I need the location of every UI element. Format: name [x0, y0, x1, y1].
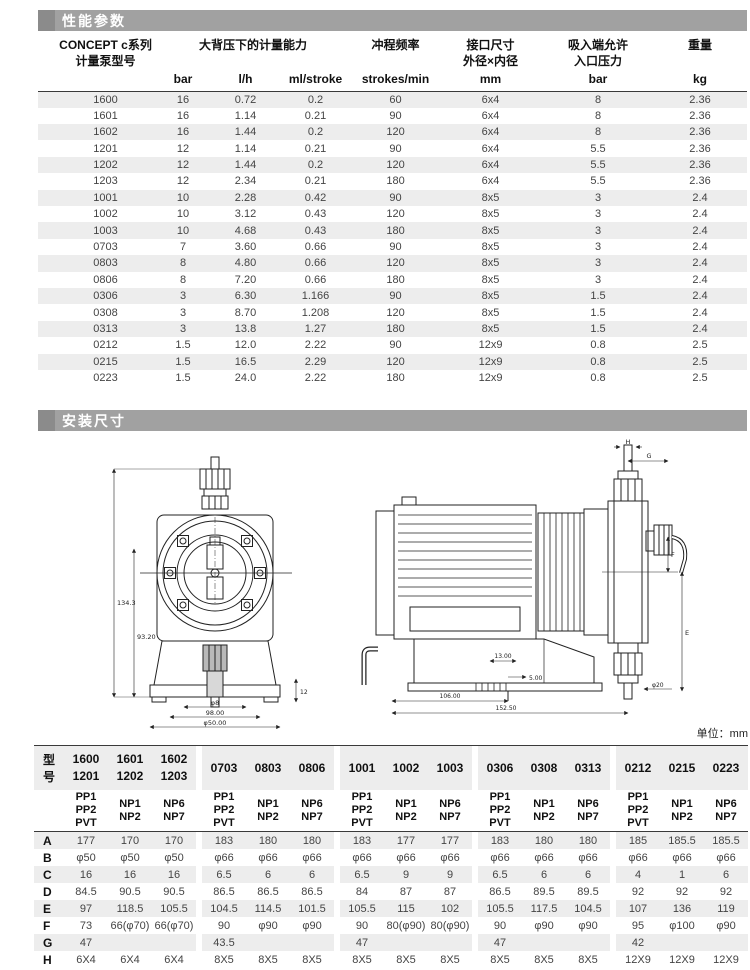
section-accent-square	[38, 10, 55, 31]
performance-cell: 8	[153, 272, 213, 288]
datasheet-page: 性能参数 CONCEPT c系列 计量泵型号 大背压下的计量能力 冲程频率 接口…	[0, 0, 750, 970]
dim-cell: 119	[704, 900, 748, 917]
dim-group: 43.5	[202, 934, 334, 951]
performance-cell: 1.5	[543, 321, 653, 337]
dim-cell: 86.5	[246, 883, 290, 900]
performance-cell: 8x5	[438, 206, 543, 222]
dim-cell: 6	[290, 866, 334, 883]
dim-row-label: E	[34, 900, 64, 917]
dim-cell: NP6NP7	[152, 790, 196, 831]
performance-row: 02151.516.52.2912012x90.82.5	[38, 354, 747, 370]
performance-row: 080687.200.661808x532.4	[38, 272, 747, 288]
performance-cell: 10	[153, 206, 213, 222]
dim-group: A177170170	[34, 832, 196, 849]
col-header-capacity: 大背压下的计量能力	[153, 37, 353, 70]
dim-group: H6X46X46X4	[34, 951, 196, 968]
performance-cell: 0.21	[278, 140, 353, 156]
performance-cell: 12	[153, 157, 213, 173]
dim-cell: 6	[246, 866, 290, 883]
dim-cell: NP6NP7	[290, 790, 334, 831]
performance-cell: 0703	[38, 239, 153, 255]
performance-cell: 2.34	[213, 173, 278, 189]
dim-cell: φ50	[64, 849, 108, 866]
dim-cell: 101.5	[290, 900, 334, 917]
performance-cell: 0.72	[213, 91, 278, 107]
performance-cell: 2.5	[653, 337, 747, 353]
performance-cell: 1002	[38, 206, 153, 222]
dim-cell: 183	[202, 832, 246, 849]
performance-row: 02121.512.02.229012x90.82.5	[38, 337, 747, 353]
performance-cell: 8x5	[438, 321, 543, 337]
dim-group: 070308030806	[202, 746, 334, 790]
dim-cell: φ66	[704, 849, 748, 866]
dim-cell: φ66	[522, 849, 566, 866]
dim-cell: 90	[478, 917, 522, 934]
dim-cell: 0313	[566, 746, 610, 790]
dim-cell	[152, 934, 196, 951]
col-header-model: CONCEPT c系列 计量泵型号	[38, 37, 153, 70]
dim-cell	[522, 934, 566, 951]
performance-cell: 3	[153, 304, 213, 320]
dim-cell: 92	[704, 883, 748, 900]
dim-row-label: C	[34, 866, 64, 883]
dim-cell: NP6NP7	[566, 790, 610, 831]
dim-group: φ66φ66φ66	[202, 849, 334, 866]
dim-row-label: F	[34, 917, 64, 934]
performance-cell: 3	[543, 222, 653, 238]
performance-cell: 180	[353, 272, 438, 288]
col-header-model-line1: CONCEPT c系列	[58, 38, 153, 54]
dim-group: 47	[340, 934, 472, 951]
dim-cell: 183	[478, 832, 522, 849]
dim-group: G47	[34, 934, 196, 951]
dim-cell: 8X5	[246, 951, 290, 968]
dim-cell: NP6NP7	[704, 790, 748, 831]
dimension-label: E	[685, 629, 689, 637]
dim-cell: PP1PP2PVT	[616, 790, 660, 831]
performance-cell: 6x4	[438, 140, 543, 156]
performance-cell: 0.66	[278, 239, 353, 255]
dim-cell: 84.5	[64, 883, 108, 900]
col-header-stroke-frequency: 冲程频率	[353, 37, 438, 70]
dim-cell: 97	[64, 900, 108, 917]
performance-cell: 3	[153, 321, 213, 337]
dim-group: 183180180	[202, 832, 334, 849]
dim-cell: 177	[428, 832, 472, 849]
dim-group: 183177177	[340, 832, 472, 849]
dim-cell: 86.5	[478, 883, 522, 900]
performance-row: 030636.301.166908x51.52.4	[38, 288, 747, 304]
dim-cell: φ90	[522, 917, 566, 934]
dim-group: 6.599	[340, 866, 472, 883]
dim-cell: 8X5	[478, 951, 522, 968]
performance-cell: 8x5	[438, 272, 543, 288]
performance-cell: 0.2	[278, 91, 353, 107]
dim-cell: φ66	[290, 849, 334, 866]
dim-cell: φ66	[202, 849, 246, 866]
dim-cell: PP1PP2PVT	[340, 790, 384, 831]
performance-cell: 2.22	[278, 337, 353, 353]
dim-cell: 16011202	[108, 746, 152, 790]
dim-cell: 105.5	[152, 900, 196, 917]
dim-table-row: D84.590.590.586.586.586.584878786.589.58…	[34, 883, 748, 900]
dim-group: 416	[616, 866, 748, 883]
dim-group: 42	[616, 934, 748, 951]
performance-cell: 0.43	[278, 222, 353, 238]
performance-cell: 0.66	[278, 255, 353, 271]
dim-group: 021202150223	[616, 746, 748, 790]
performance-cell: 90	[353, 108, 438, 124]
performance-cell: 16	[153, 108, 213, 124]
dim-row-label: H	[34, 951, 64, 968]
col-header-suction-line2: 入口压力	[543, 54, 653, 70]
dim-cell: 86.5	[202, 883, 246, 900]
performance-cell: 180	[353, 321, 438, 337]
dim-group: 848787	[340, 883, 472, 900]
dim-cell: φ66	[384, 849, 428, 866]
unit-mlstroke: ml/stroke	[278, 70, 353, 91]
dimension-label: 13.00	[494, 653, 511, 660]
performance-row: 030838.701.2081208x51.52.4	[38, 304, 747, 320]
performance-cell: 2.36	[653, 124, 747, 140]
dim-cell	[108, 934, 152, 951]
performance-cell: 6x4	[438, 157, 543, 173]
dim-row-label: D	[34, 883, 64, 900]
dim-cell: 80(φ90)	[384, 917, 428, 934]
dim-cell: 92	[616, 883, 660, 900]
dim-group: Bφ50φ50φ50	[34, 849, 196, 866]
dim-cell: 8X5	[428, 951, 472, 968]
performance-cell: 0.8	[543, 370, 653, 386]
performance-cell: 1.5	[543, 304, 653, 320]
dim-table-row: H6X46X46X48X58X58X58X58X58X58X58X58X512X…	[34, 951, 748, 968]
dim-group: C161616	[34, 866, 196, 883]
installation-drawings: 134.3 93.20 φ8 98.00 φ50.00 12	[100, 437, 750, 723]
dim-group: φ66φ66φ66	[616, 849, 748, 866]
dim-cell: NP1NP2	[384, 790, 428, 831]
performance-cell: 6x4	[438, 124, 543, 140]
dim-cell: 47	[64, 934, 108, 951]
performance-row: 1602161.440.21206x482.36	[38, 124, 747, 140]
dim-cell: 6	[522, 866, 566, 883]
dim-cell: 114.5	[246, 900, 290, 917]
performance-cell: 1202	[38, 157, 153, 173]
performance-cell: 180	[353, 370, 438, 386]
dim-group: 107136119	[616, 900, 748, 917]
performance-cell: 2.4	[653, 206, 747, 222]
dim-cell: 42	[616, 934, 660, 951]
dim-cell: 115	[384, 900, 428, 917]
performance-cell: 6x4	[438, 91, 543, 107]
dim-cell: φ90	[290, 917, 334, 934]
unit-bar: bar	[153, 70, 213, 91]
performance-cell: 0306	[38, 288, 153, 304]
dim-cell: 47	[478, 934, 522, 951]
dim-cell: 66(φ70)	[108, 917, 152, 934]
dim-cell: 6X4	[108, 951, 152, 968]
performance-cell: 8.70	[213, 304, 278, 320]
dimension-label: 12	[300, 689, 308, 696]
dim-cell: 4	[616, 866, 660, 883]
performance-cell: 0.42	[278, 190, 353, 206]
dim-group: 95φ100φ90	[616, 917, 748, 934]
dim-cell: 136	[660, 900, 704, 917]
performance-cell: 0313	[38, 321, 153, 337]
dimension-label: 5.00	[529, 675, 543, 682]
dim-cell: 80(φ90)	[428, 917, 472, 934]
performance-cell: 8x5	[438, 239, 543, 255]
performance-cell: 0.2	[278, 124, 353, 140]
dim-cell: 8X5	[566, 951, 610, 968]
section-performance-title: 性能参数	[55, 11, 126, 31]
performance-cell: 3.60	[213, 239, 278, 255]
dim-cell: 16	[108, 866, 152, 883]
performance-cell: 1.5	[153, 337, 213, 353]
dim-cell: 95	[616, 917, 660, 934]
performance-cell: 12	[153, 173, 213, 189]
dim-group: 8X58X58X5	[202, 951, 334, 968]
dimension-label: G	[646, 452, 651, 460]
performance-cell: 0.2	[278, 157, 353, 173]
dim-cell: φ90	[566, 917, 610, 934]
col-header-weight: 重量	[653, 37, 747, 70]
performance-cell: 2.36	[653, 91, 747, 107]
dim-cell: 104.5	[202, 900, 246, 917]
dim-group: 90φ90φ90	[202, 917, 334, 934]
performance-cell: 3	[543, 206, 653, 222]
performance-cell: 3	[153, 288, 213, 304]
performance-row: 0313313.81.271808x51.52.4	[38, 321, 747, 337]
performance-cell: 1.14	[213, 108, 278, 124]
performance-cell: 2.36	[653, 140, 747, 156]
dimensions-table: 型号16001201160112021602120307030803080610…	[34, 745, 748, 968]
dim-cell: 105.5	[340, 900, 384, 917]
dim-cell: 0806	[290, 746, 334, 790]
performance-cell: 2.4	[653, 288, 747, 304]
dim-cell: 86.5	[290, 883, 334, 900]
dim-cell: 8X5	[290, 951, 334, 968]
dim-cell: 104.5	[566, 900, 610, 917]
performance-row: 080384.800.661208x532.4	[38, 255, 747, 271]
dim-group: 8X58X58X5	[340, 951, 472, 968]
performance-cell: 8	[543, 108, 653, 124]
dim-cell: 180	[522, 832, 566, 849]
dim-cell: 102	[428, 900, 472, 917]
performance-cell: 90	[353, 337, 438, 353]
dim-group: PP1PP2PVTNP1NP2NP6NP7	[478, 790, 610, 831]
dim-cell: 6.5	[202, 866, 246, 883]
performance-cell: 90	[353, 140, 438, 156]
performance-cell: 120	[353, 206, 438, 222]
performance-cell: 1.44	[213, 124, 278, 140]
performance-cell: 90	[353, 288, 438, 304]
performance-cell: 16	[153, 91, 213, 107]
performance-cell: 1.44	[213, 157, 278, 173]
performance-cell: 120	[353, 304, 438, 320]
performance-cell: 24.0	[213, 370, 278, 386]
dim-group: 6.566	[478, 866, 610, 883]
performance-cell: 1.208	[278, 304, 353, 320]
dim-cell: 6X4	[64, 951, 108, 968]
performance-row: 070373.600.66908x532.4	[38, 239, 747, 255]
col-header-model-line2: 计量泵型号	[58, 54, 153, 70]
performance-cell: 1.5	[153, 370, 213, 386]
dimension-label: F	[671, 551, 675, 559]
performance-cell: 12	[153, 140, 213, 156]
dim-cell: NP1NP2	[246, 790, 290, 831]
performance-cell: 0.43	[278, 206, 353, 222]
performance-cell: 5.5	[543, 140, 653, 156]
performance-cell: 0.8	[543, 354, 653, 370]
dim-cell: 84	[340, 883, 384, 900]
performance-cell: 8x5	[438, 288, 543, 304]
dim-cell: 90.5	[152, 883, 196, 900]
dim-cell	[246, 934, 290, 951]
dim-cell: 180	[290, 832, 334, 849]
performance-cell: 1001	[38, 190, 153, 206]
performance-cell: 2.4	[653, 321, 747, 337]
performance-cell: 10	[153, 222, 213, 238]
dim-table-row: PP1PP2PVTNP1NP2NP6NP7PP1PP2PVTNP1NP2NP6N…	[34, 790, 748, 832]
performance-cell: 60	[353, 91, 438, 107]
performance-cell: 0215	[38, 354, 153, 370]
dim-row-label: B	[34, 849, 64, 866]
dim-group: PP1PP2PVTNP1NP2NP6NP7	[616, 790, 748, 831]
dim-group: 86.586.586.5	[202, 883, 334, 900]
performance-cell: 1.14	[213, 140, 278, 156]
dim-cell: 185.5	[704, 832, 748, 849]
dim-cell: 117.5	[522, 900, 566, 917]
col-header-connection-line2: 外径×内径	[438, 54, 543, 70]
performance-cell: 1601	[38, 108, 153, 124]
dim-group: E97118.5105.5	[34, 900, 196, 917]
dim-group: F7366(φ70)66(φ70)	[34, 917, 196, 934]
dim-group: 12X912X912X9	[616, 951, 748, 968]
performance-cell: 2.4	[653, 255, 747, 271]
performance-cell: 120	[353, 354, 438, 370]
performance-cell: 2.4	[653, 239, 747, 255]
dim-group: φ66φ66φ66	[478, 849, 610, 866]
col-header-suction-line1: 吸入端允许	[543, 38, 653, 54]
dim-cell: 180	[566, 832, 610, 849]
performance-row: 1201121.140.21906x45.52.36	[38, 140, 747, 156]
dim-cell	[428, 934, 472, 951]
performance-cell: 12x9	[438, 337, 543, 353]
dim-group: 100110021003	[340, 746, 472, 790]
performance-cell: 1.5	[543, 288, 653, 304]
dim-cell	[704, 934, 748, 951]
dim-row-label: A	[34, 832, 64, 849]
dim-group: 104.5114.5101.5	[202, 900, 334, 917]
dim-cell: φ66	[246, 849, 290, 866]
dim-table-row: Bφ50φ50φ50φ66φ66φ66φ66φ66φ66φ66φ66φ66φ66…	[34, 849, 748, 866]
dim-cell: 87	[384, 883, 428, 900]
col-header-suction: 吸入端允许 入口压力	[543, 37, 653, 70]
dim-cell: 6X4	[152, 951, 196, 968]
dim-cell: 6.5	[478, 866, 522, 883]
performance-cell: 4.68	[213, 222, 278, 238]
performance-row: 1003104.680.431808x532.4	[38, 222, 747, 238]
performance-cell: 90	[353, 190, 438, 206]
dim-cell	[290, 934, 334, 951]
dim-cell: 12X9	[660, 951, 704, 968]
performance-cell: 1201	[38, 140, 153, 156]
dim-cell: 9	[428, 866, 472, 883]
performance-cell: 7	[153, 239, 213, 255]
performance-cell: 5.5	[543, 173, 653, 189]
dim-cell: 6	[566, 866, 610, 883]
dimension-label: 134.3	[117, 599, 136, 607]
dim-cell: 6.5	[340, 866, 384, 883]
dim-group: 105.5115102	[340, 900, 472, 917]
performance-cell: 2.4	[653, 222, 747, 238]
dim-group: 9080(φ90)80(φ90)	[340, 917, 472, 934]
dim-group: 90φ90φ90	[478, 917, 610, 934]
performance-row: 1203122.340.211806x45.52.36	[38, 173, 747, 189]
performance-cell: 3	[543, 255, 653, 271]
performance-cell: 6.30	[213, 288, 278, 304]
dim-group: φ66φ66φ66	[340, 849, 472, 866]
dim-group: 105.5117.5104.5	[478, 900, 610, 917]
dim-group: PP1PP2PVTNP1NP2NP6NP7	[202, 790, 334, 831]
performance-cell: 0.21	[278, 108, 353, 124]
dim-cell: 0212	[616, 746, 660, 790]
dim-cell: 16	[64, 866, 108, 883]
performance-cell: 5.5	[543, 157, 653, 173]
performance-row: 1001102.280.42908x532.4	[38, 190, 747, 206]
dim-cell: PP1PP2PVT	[202, 790, 246, 831]
dim-cell: 107	[616, 900, 660, 917]
performance-row: 1002103.120.431208x532.4	[38, 206, 747, 222]
dim-group: PP1PP2PVTNP1NP2NP6NP7	[340, 790, 472, 831]
dim-cell: 183	[340, 832, 384, 849]
dim-cell: 16001201	[64, 746, 108, 790]
dim-group: 929292	[616, 883, 748, 900]
performance-cell: 7.20	[213, 272, 278, 288]
dim-cell: φ66	[660, 849, 704, 866]
dim-cell: 89.5	[566, 883, 610, 900]
dim-cell: φ50	[108, 849, 152, 866]
dim-cell: 8X5	[340, 951, 384, 968]
performance-cell: 3	[543, 272, 653, 288]
unit-strokesmin: strokes/min	[353, 70, 438, 91]
performance-cell: 12x9	[438, 370, 543, 386]
dim-cell: 177	[64, 832, 108, 849]
performance-cell: 120	[353, 157, 438, 173]
performance-row: 02231.524.02.2218012x90.82.5	[38, 370, 747, 386]
section-accent-square	[38, 410, 55, 431]
dim-cell: φ66	[478, 849, 522, 866]
performance-cell: 1203	[38, 173, 153, 189]
performance-cell: 8x5	[438, 190, 543, 206]
dim-group: 183180180	[478, 832, 610, 849]
performance-cell: 0.21	[278, 173, 353, 189]
dimension-label: 106.00	[440, 693, 461, 700]
dim-cell: 90	[340, 917, 384, 934]
dim-group: 86.589.589.5	[478, 883, 610, 900]
pump-front-view-drawing: 134.3 93.20 φ8 98.00 φ50.00 12	[100, 453, 340, 733]
performance-cell: 1602	[38, 124, 153, 140]
section-dimensions-title: 安装尺寸	[55, 411, 126, 431]
performance-cell: 0803	[38, 255, 153, 271]
dim-cell: 0306	[478, 746, 522, 790]
dim-row-label	[34, 790, 64, 831]
dim-cell: 9	[384, 866, 428, 883]
performance-cell: 3	[543, 190, 653, 206]
dim-cell: 43.5	[202, 934, 246, 951]
dim-table-row: F7366(φ70)66(φ70)90φ90φ909080(φ90)80(φ90…	[34, 917, 748, 934]
dim-cell: 1001	[340, 746, 384, 790]
